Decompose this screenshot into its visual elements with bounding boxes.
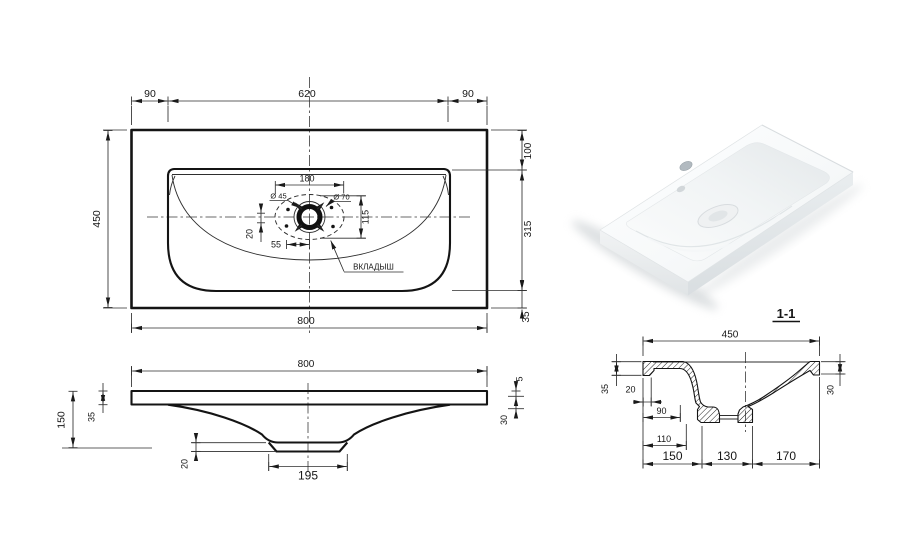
dim-label-170: 170: [776, 449, 796, 463]
dim-label-450: 450: [91, 210, 103, 228]
dim-label-20-plan: 20: [245, 229, 255, 239]
dim-label-100: 100: [523, 142, 534, 159]
dim-label-90-sec: 90: [656, 406, 666, 416]
dim-insert-55: 55: [271, 240, 310, 250]
callout-dia-45: Ø 45: [270, 192, 301, 209]
washbasin-drawing: 90 620 90 450 800: [0, 0, 900, 538]
dim-elev-195: 195: [269, 454, 348, 483]
dim-label-620: 620: [298, 88, 316, 100]
dim-label-30-elev: 30: [499, 415, 509, 425]
dim-elev-20: 20: [180, 435, 276, 470]
drain-dot-3: [330, 206, 334, 210]
dim-label-180: 180: [299, 174, 314, 184]
dia45-label: Ø 45: [270, 192, 286, 201]
dim-label-150: 150: [56, 411, 68, 429]
drain-dot-1: [286, 208, 290, 212]
dim-sec-20: 20: [625, 378, 662, 407]
dim-label-315: 315: [523, 220, 534, 237]
dim-label-35-sec: 35: [600, 384, 610, 394]
plan-basin-outline: [168, 169, 450, 291]
section-right-wall: [738, 362, 820, 423]
elevation-view: 800 150 35: [56, 359, 525, 483]
dim-label-35-elev: 35: [87, 412, 97, 422]
dim-label-90-right: 90: [462, 88, 474, 100]
drain-dot-2: [285, 224, 289, 228]
dim-label-150-sec: 150: [662, 449, 682, 463]
elevation-slab: [132, 391, 488, 405]
elevation-bowl-curve: [168, 405, 450, 443]
dim-label-110: 110: [657, 434, 671, 444]
section-title: 1-1: [777, 306, 796, 321]
dim-label-55: 55: [271, 240, 281, 250]
callout-insert: ВКЛАДЫШ: [331, 241, 404, 273]
dim-label-35-plan: 35: [521, 311, 532, 323]
dim-sec-110: 110: [643, 424, 686, 450]
technical-drawing-page: 90 620 90 450 800: [0, 0, 900, 538]
dim-insert-20: 20: [245, 205, 266, 243]
dia70-label: Ø 70: [333, 193, 349, 202]
dim-label-800-plan: 800: [297, 315, 315, 327]
dim-label-195: 195: [298, 469, 318, 483]
section-left-wall: [643, 362, 720, 423]
dim-sec-30: 30: [821, 354, 846, 395]
dim-plan-bottom: 800: [132, 313, 488, 333]
dim-label-20-sec: 20: [625, 385, 635, 395]
plan-view: 90 620 90 450 800: [91, 77, 534, 333]
dim-label-30-sec: 30: [826, 385, 836, 395]
dim-elev-5-30: 5 30: [499, 376, 525, 425]
dim-label-800-elev: 800: [298, 359, 315, 370]
dim-plan-left: 450: [91, 130, 127, 308]
dim-elev-35: 35: [87, 383, 108, 422]
dim-label-130: 130: [717, 449, 737, 463]
dim-label-115: 115: [361, 210, 371, 224]
dim-sec-450: 450: [643, 330, 820, 357]
dim-elev-800: 800: [132, 359, 488, 387]
product-render: [567, 125, 867, 317]
plan-basin-bowl-curve: [172, 175, 446, 260]
dim-sec-90: 90: [643, 405, 680, 422]
dim-label-20-elev: 20: [180, 459, 190, 469]
dim-plan-right: 100 315 35: [452, 130, 534, 323]
dim-label-450-sec: 450: [722, 330, 739, 341]
dim-sec-chain: 150 130 170: [643, 377, 820, 469]
dim-label-90-left: 90: [144, 88, 156, 100]
section-view: 1-1 450 35: [600, 306, 846, 469]
dim-label-5: 5: [515, 376, 525, 381]
insert-callout-label: ВКЛАДЫШ: [353, 263, 394, 272]
dim-elev-150: 150: [56, 391, 153, 448]
drain-dot-4: [331, 225, 335, 229]
